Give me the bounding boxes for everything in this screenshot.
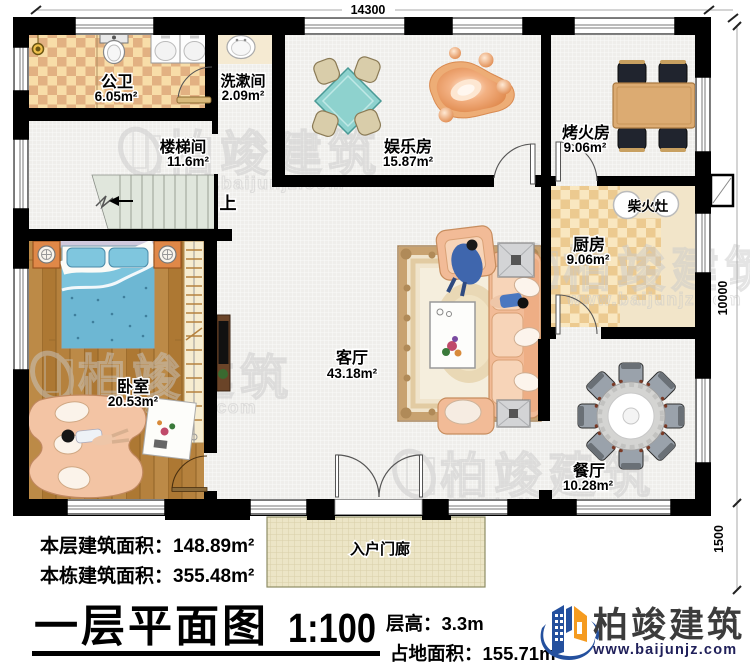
svg-text:入户门廊: 入户门廊: [350, 540, 410, 558]
svg-text:43.18m²: 43.18m²: [327, 366, 378, 381]
svg-text:10.28m²: 10.28m²: [563, 478, 614, 493]
svg-text:柴火灶: 柴火灶: [627, 198, 669, 214]
svg-text:11.6m²: 11.6m²: [167, 154, 210, 169]
svg-text:6.05m²: 6.05m²: [95, 89, 138, 104]
svg-text:9.06m²: 9.06m²: [567, 252, 610, 267]
svg-text:柏竣建筑: 柏竣建筑: [593, 605, 745, 645]
svg-text:一层平面图: 一层平面图: [34, 602, 269, 651]
svg-text:1500: 1500: [712, 525, 726, 553]
svg-text:本栋建筑面积：355.48m²: 本栋建筑面积：355.48m²: [40, 564, 254, 587]
svg-text:9.06m²: 9.06m²: [564, 140, 607, 155]
svg-text:占地面积：155.71m: 占地面积：155.71m: [390, 643, 556, 664]
svg-text:客厅: 客厅: [336, 348, 368, 367]
svg-text:本层建筑面积：148.89m²: 本层建筑面积：148.89m²: [40, 534, 254, 557]
svg-text:www.baijunjz.com: www.baijunjz.com: [592, 642, 737, 658]
svg-text:14300: 14300: [351, 3, 386, 17]
svg-text:层高：3.3m: 层高：3.3m: [386, 613, 484, 634]
svg-text:1:100: 1:100: [288, 605, 376, 651]
svg-text:10000: 10000: [716, 281, 730, 316]
svg-text:20.53m²: 20.53m²: [108, 394, 159, 409]
svg-text:2.09m²: 2.09m²: [222, 88, 265, 103]
svg-text:15.87m²: 15.87m²: [383, 154, 434, 169]
svg-text:上: 上: [220, 194, 237, 213]
